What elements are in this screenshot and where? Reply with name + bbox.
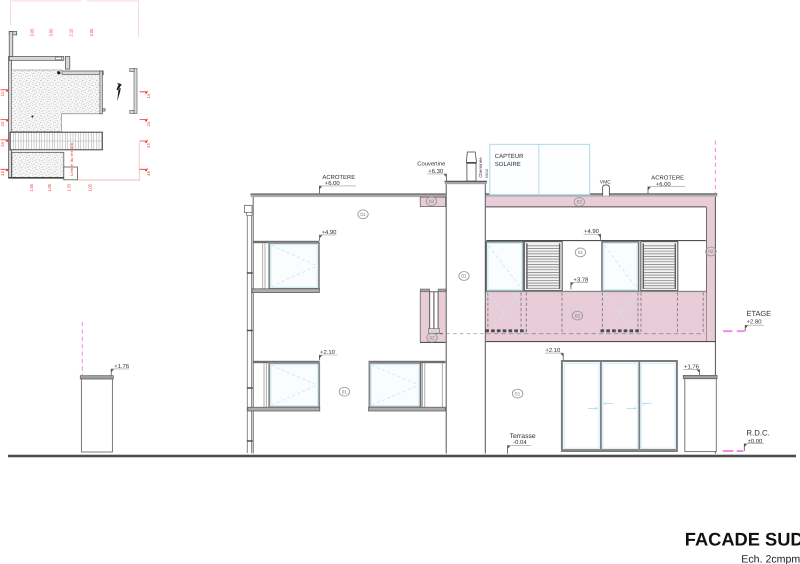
svg-text:ACROTERE: ACROTERE <box>322 174 355 181</box>
svg-text:1.5: 1.5 <box>146 93 151 99</box>
svg-text:+2.80: +2.80 <box>747 318 763 325</box>
svg-text:3.5: 3.5 <box>0 141 5 147</box>
svg-text:3.05: 3.05 <box>30 28 35 37</box>
svg-text:01: 01 <box>461 274 467 280</box>
svg-text:2.15: 2.15 <box>69 28 74 37</box>
svg-text:+4.90: +4.90 <box>584 228 600 235</box>
svg-text:02: 02 <box>708 249 714 255</box>
svg-text:01: 01 <box>515 391 521 397</box>
svg-text:02: 02 <box>429 199 435 205</box>
svg-text:ETAGE: ETAGE <box>747 309 772 318</box>
svg-text:01: 01 <box>342 389 348 395</box>
svg-text:2.5: 2.5 <box>0 121 5 127</box>
svg-text:SOLAIRE: SOLAIRE <box>495 161 521 168</box>
svg-text:02: 02 <box>429 335 435 341</box>
svg-text:1.5: 1.5 <box>0 91 5 97</box>
svg-text:4.5: 4.5 <box>146 170 151 176</box>
svg-text:-0.04: -0.04 <box>513 439 527 446</box>
svg-text:01: 01 <box>360 212 366 218</box>
svg-text:Terrasse: Terrasse <box>510 433 536 440</box>
svg-text:1.05: 1.05 <box>47 183 52 191</box>
svg-text:1.55: 1.55 <box>29 183 34 191</box>
svg-text:Couvertine: Couvertine <box>417 160 445 167</box>
svg-text:4.5: 4.5 <box>0 170 5 176</box>
svg-text:ACROTERE: ACROTERE <box>651 174 684 181</box>
svg-text:01: 01 <box>578 250 584 256</box>
svg-text:3.5: 3.5 <box>146 142 151 148</box>
svg-text:2.5: 2.5 <box>146 121 151 127</box>
svg-text:Ech. 2cmpm: Ech. 2cmpm <box>741 553 800 564</box>
svg-text:1.05: 1.05 <box>88 183 93 191</box>
svg-text:02: 02 <box>575 313 581 319</box>
svg-text:R.D.C.: R.D.C. <box>746 428 769 437</box>
svg-text:3.05: 3.05 <box>89 28 94 37</box>
svg-text:Limite du terrain: Limite du terrain <box>69 143 74 176</box>
svg-text:+2.10: +2.10 <box>545 347 561 354</box>
svg-text:3.05: 3.05 <box>49 28 54 37</box>
svg-text:CAPTEUR: CAPTEUR <box>495 153 524 160</box>
svg-text:VMC: VMC <box>600 179 612 185</box>
svg-text:Cheminée: Cheminée <box>478 157 483 178</box>
svg-text:1.70: 1.70 <box>67 183 72 191</box>
svg-text:inox: inox <box>484 168 489 178</box>
svg-text:FACADE SUD: FACADE SUD <box>685 529 800 550</box>
svg-text:02: 02 <box>577 200 583 206</box>
